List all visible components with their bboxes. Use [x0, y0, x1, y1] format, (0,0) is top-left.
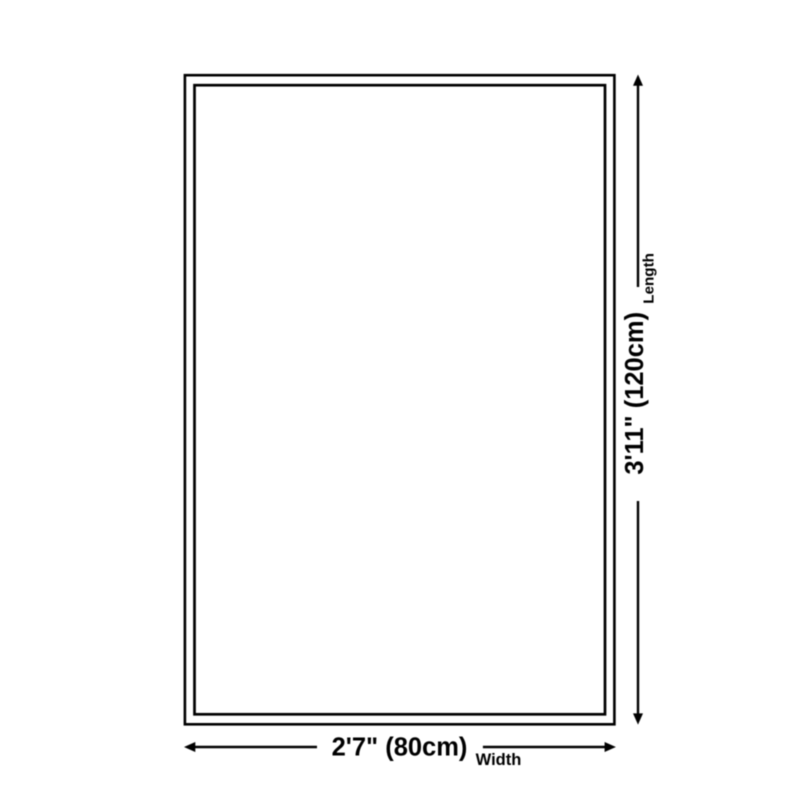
svg-text:3'11" (120cm): 3'11" (120cm)	[621, 312, 649, 475]
svg-text:Length: Length	[641, 253, 658, 304]
svg-text:Width: Width	[476, 751, 522, 769]
svg-text:2'7" (80cm): 2'7" (80cm)	[332, 734, 468, 762]
